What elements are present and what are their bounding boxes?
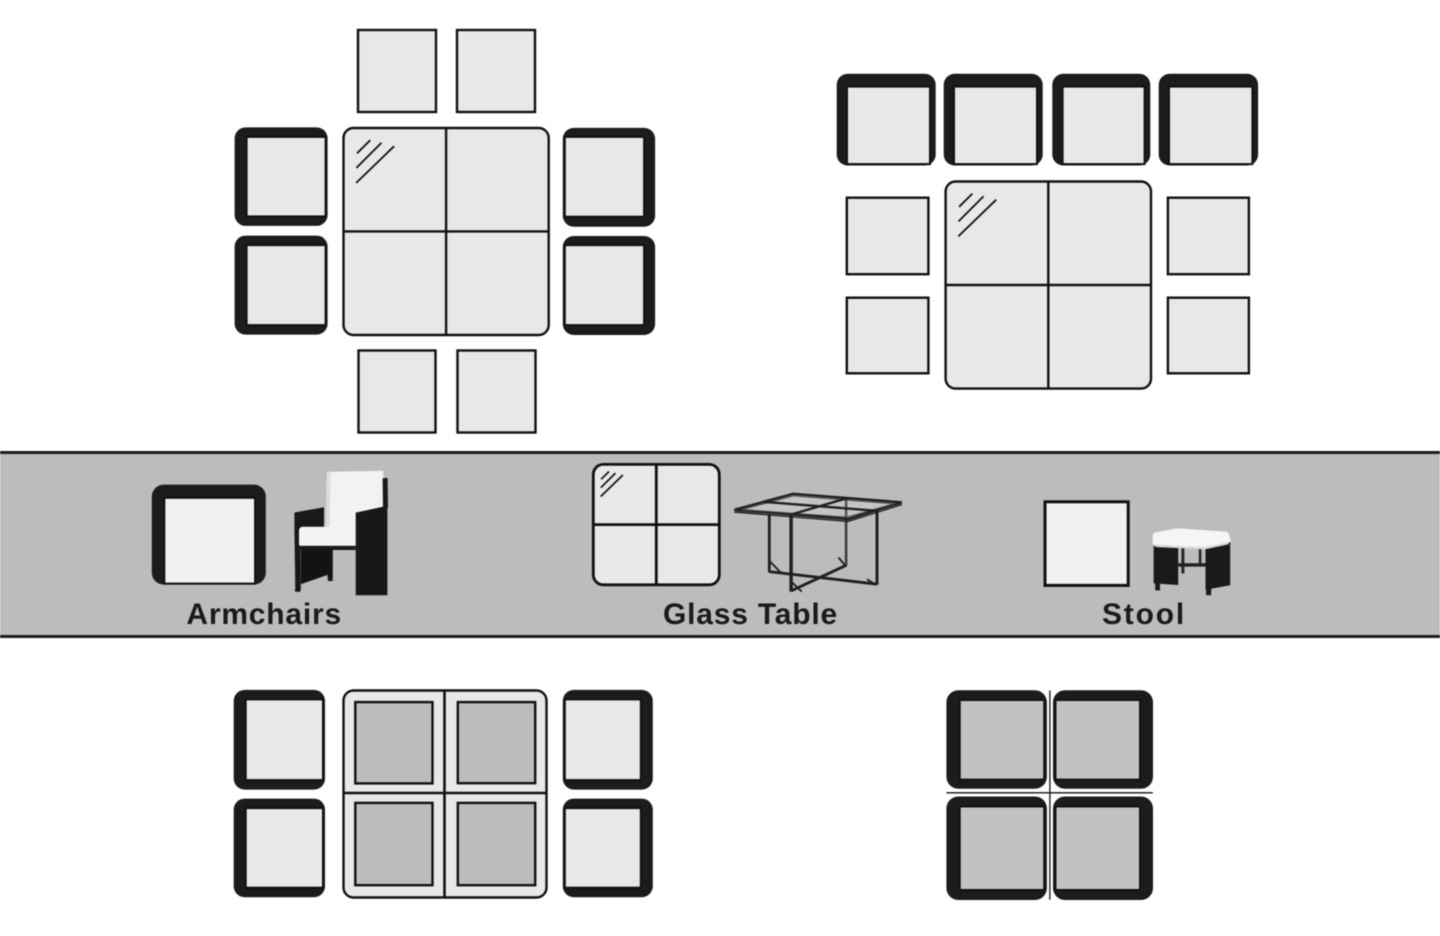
svg-text:Glass Table: Glass Table [663,598,838,631]
svg-text:Stool: Stool [1102,598,1186,631]
svg-text:Armchairs: Armchairs [186,598,342,631]
